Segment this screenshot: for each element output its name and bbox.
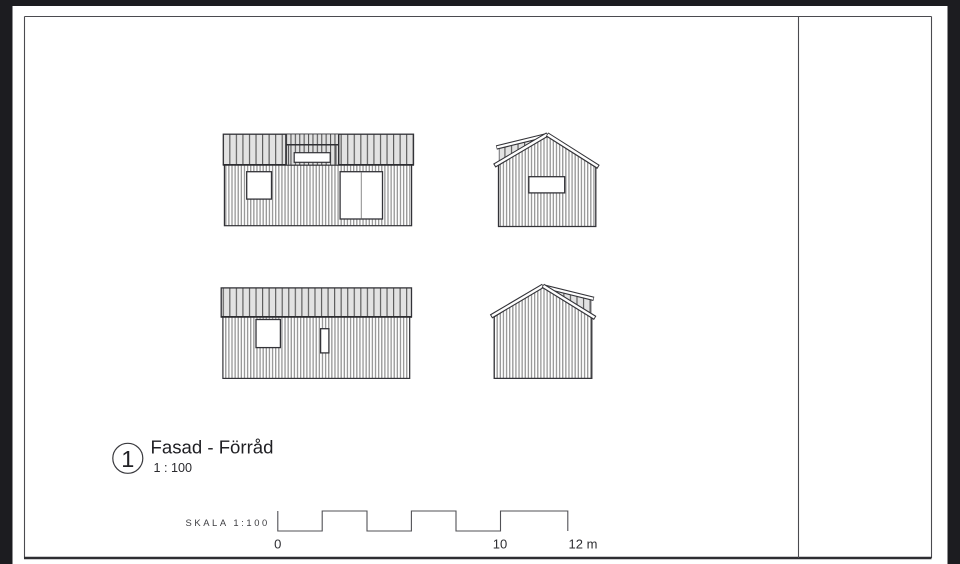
svg-text:Fasad - Förråd: Fasad - Förråd	[151, 437, 274, 458]
svg-text:1 : 100: 1 : 100	[154, 461, 193, 475]
svg-text:1: 1	[121, 446, 134, 472]
svg-text:0: 0	[274, 537, 281, 552]
svg-text:10: 10	[493, 537, 507, 552]
svg-text:12 m: 12 m	[569, 537, 598, 552]
svg-text:SKALA 1:100: SKALA 1:100	[186, 517, 270, 528]
